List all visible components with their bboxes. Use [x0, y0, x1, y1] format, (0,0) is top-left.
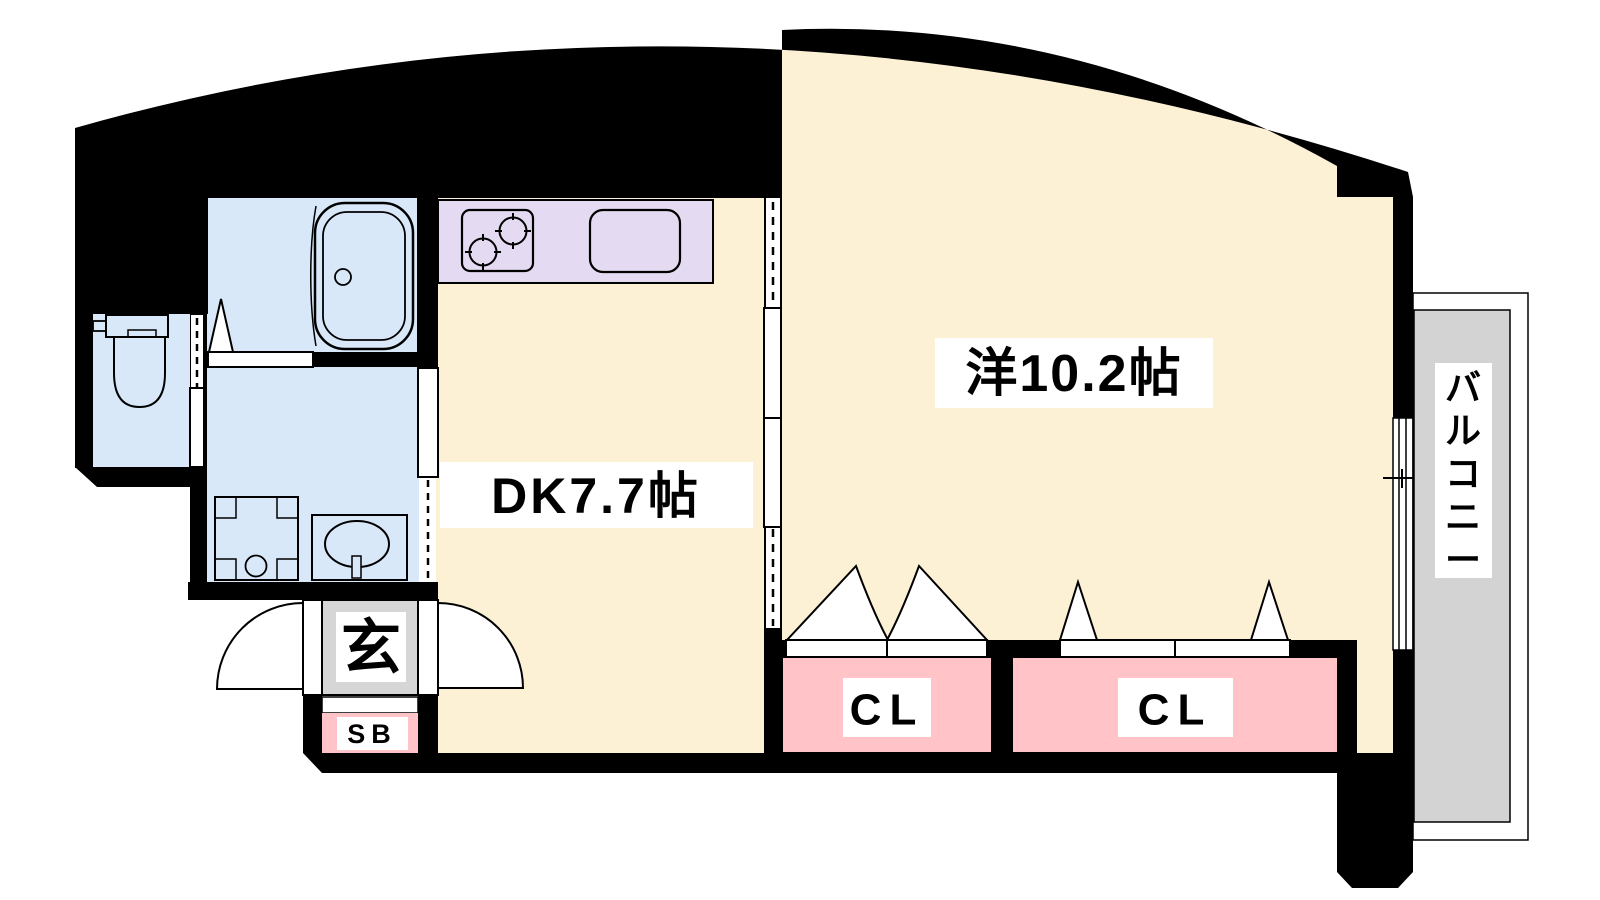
washroom-door [418, 367, 438, 582]
shoe-box-label: SB [347, 719, 397, 749]
sliding-door-dk-western [764, 198, 781, 628]
wall-right-upper [1393, 197, 1413, 418]
closet-left-label: CL [850, 686, 925, 735]
western-room-label-group: 洋10.2帖 [935, 338, 1213, 408]
balcony-label: バルコニー [1445, 367, 1481, 580]
wall-bottom-main [303, 753, 1413, 773]
closet-right-label: CL [1138, 686, 1213, 735]
wall-bathroom-right [417, 198, 438, 367]
wall-bottom-right-column [1337, 773, 1413, 888]
wall-entrance-left-flank [303, 695, 322, 753]
entrance-label: 玄 [341, 615, 401, 682]
wall-washroom-bottom [188, 582, 438, 600]
wall-under-toilet [75, 467, 190, 487]
wall-bathroom-bottom [313, 352, 418, 367]
wall-closet-separator [992, 640, 1012, 753]
wall-entrance-right-flank [418, 695, 438, 753]
balcony: バルコニー [1413, 293, 1528, 840]
dk-label-group: DK7.7帖 [440, 462, 753, 528]
wall-left [75, 128, 93, 468]
floor-plan: バルコニー CL CL 玄 SB [0, 0, 1600, 900]
entrance-side-right [418, 600, 438, 695]
toilet-door [190, 315, 204, 467]
wall-right-lower [1393, 650, 1413, 755]
bathroom-floor [207, 198, 418, 354]
western-room-label: 洋10.2帖 [965, 345, 1182, 403]
floor-plan-page: バルコニー CL CL 玄 SB [0, 0, 1600, 900]
entrance-side-left [303, 600, 322, 695]
entrance-door-swing-left [217, 603, 303, 689]
dk-label: DK7.7帖 [491, 468, 701, 524]
wall-left-block [75, 196, 208, 314]
entrance-step [322, 697, 418, 713]
